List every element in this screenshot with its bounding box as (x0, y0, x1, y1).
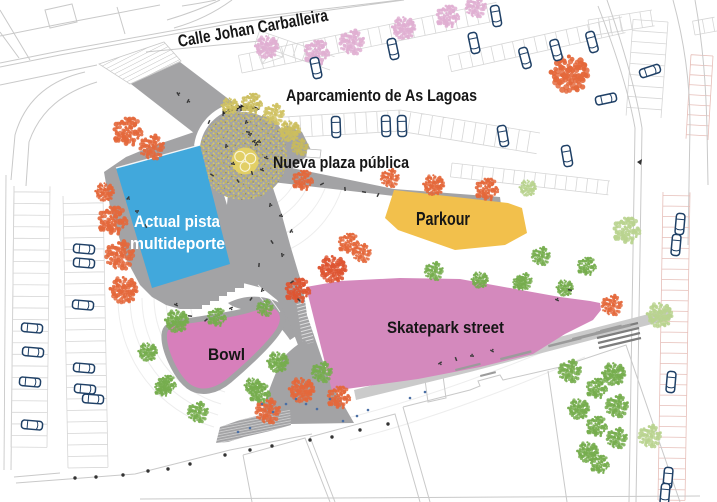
svg-text:Actual pista: Actual pista (134, 212, 220, 231)
svg-text:Parkour: Parkour (416, 209, 470, 229)
svg-text:Skatepark street: Skatepark street (387, 318, 504, 337)
svg-text:Bowl: Bowl (208, 345, 245, 364)
svg-text:Nueva plaza pública: Nueva plaza pública (273, 153, 409, 172)
svg-text:Aparcamiento de As Lagoas: Aparcamiento de As Lagoas (286, 86, 477, 105)
svg-text:multideporte: multideporte (130, 234, 225, 253)
